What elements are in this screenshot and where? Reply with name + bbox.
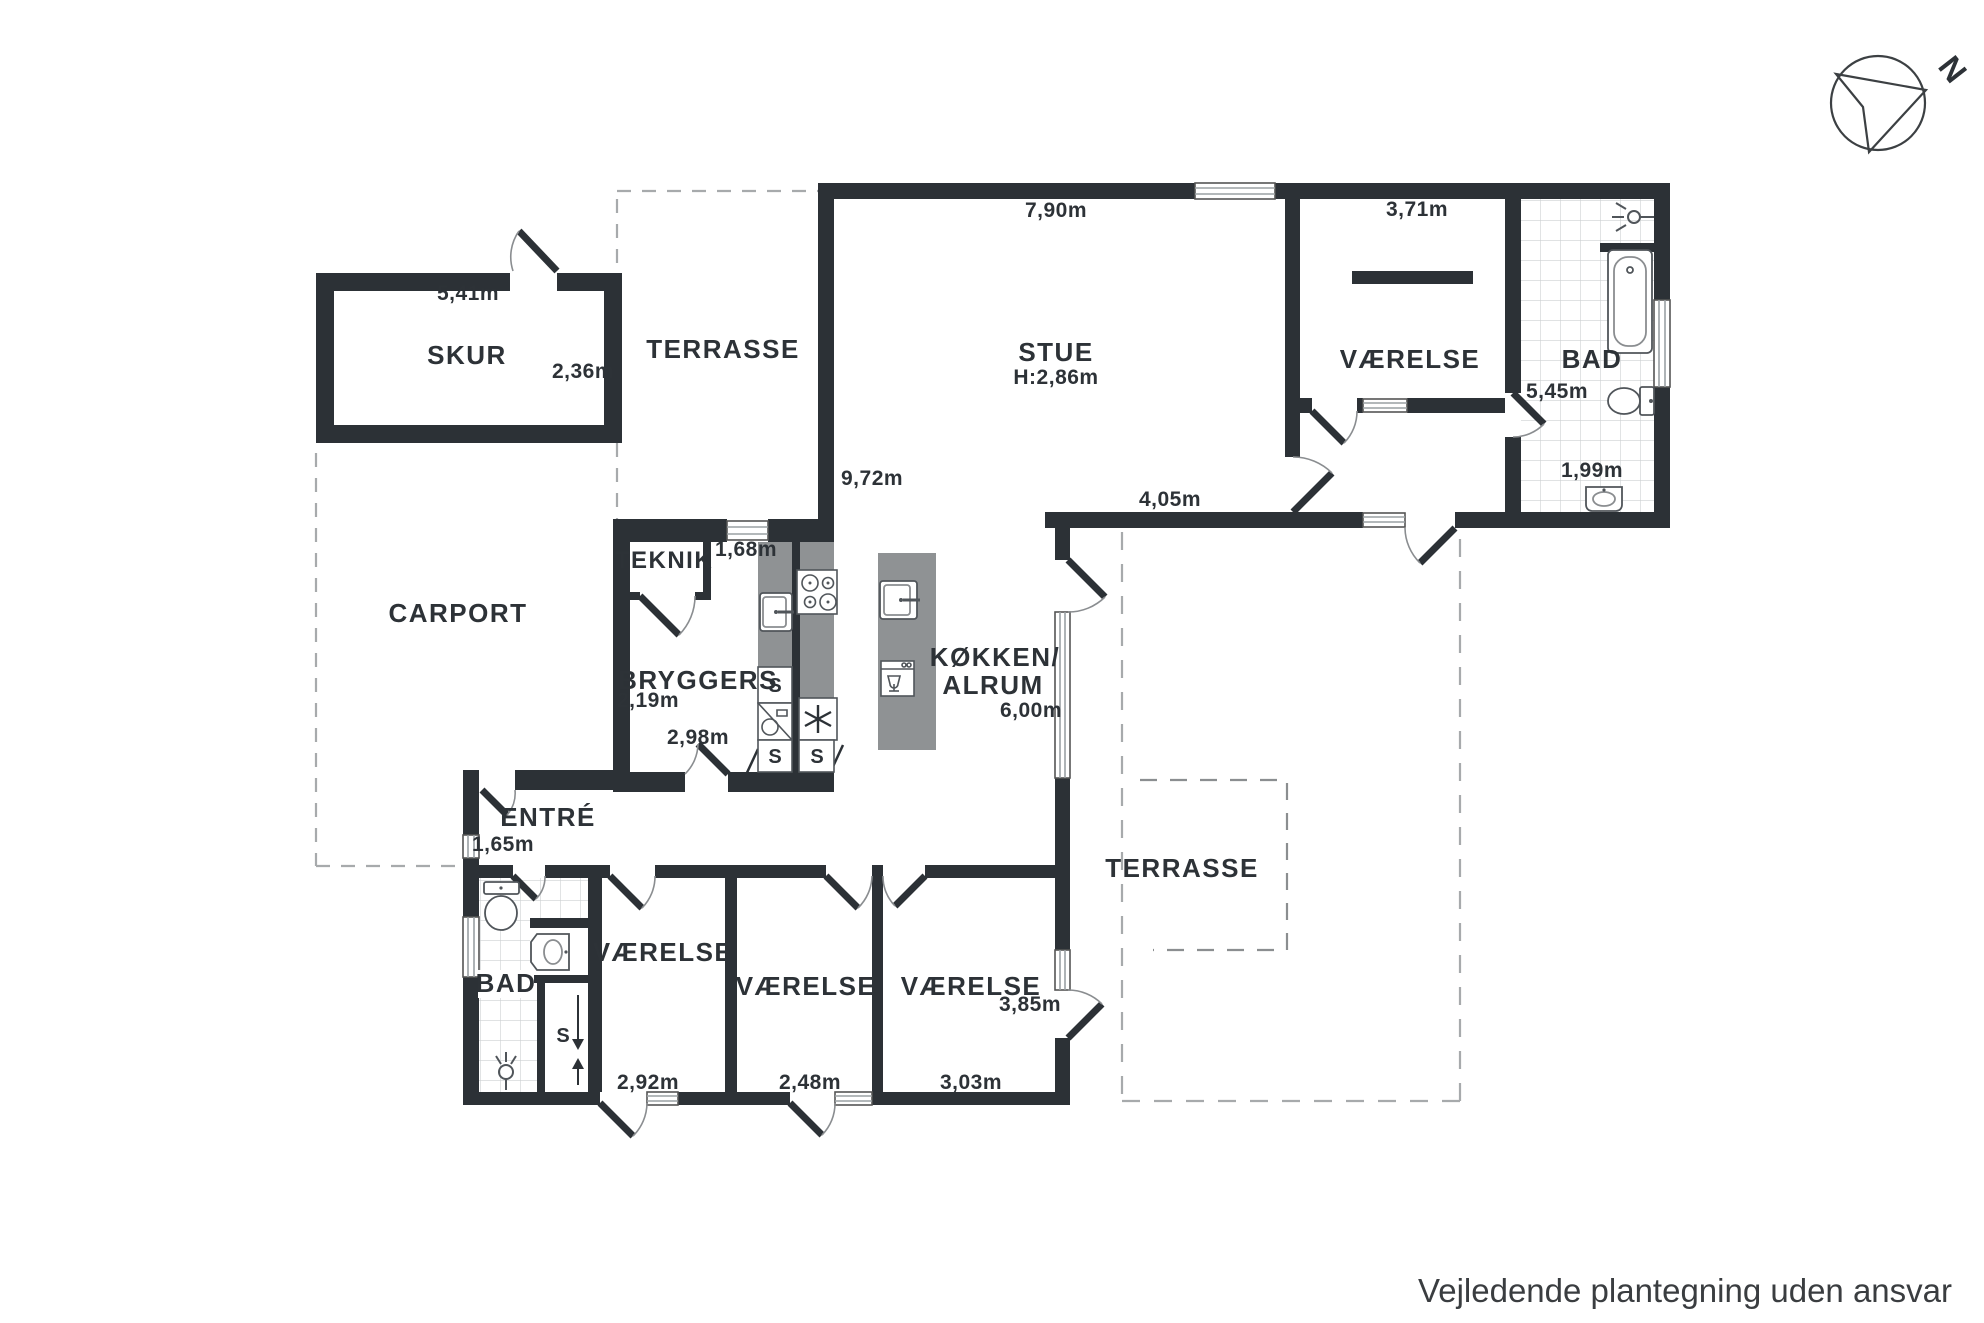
room-label-terrasse-top: TERRASSE — [646, 334, 800, 364]
dim-bad-ne-width: 1,99m — [1561, 459, 1623, 482]
sink-sw-icon — [531, 934, 569, 970]
dim-bryggers-depth: 2,98m — [667, 726, 729, 749]
cabinet-label-s3: S — [810, 746, 823, 768]
dim-bryggers-width: 2,19m — [617, 689, 679, 712]
window-vaerelse-ne — [1363, 399, 1407, 412]
dim-koekken-width: 6,00m — [1000, 699, 1062, 722]
room-label-stue: STUE — [1018, 337, 1093, 367]
cabinet-label-s1: S — [768, 675, 781, 697]
dim-entre-width: 1,65m — [472, 833, 534, 856]
room-label-teknik: TEKNIK — [615, 547, 713, 574]
cabinet-label-s2: S — [768, 746, 781, 768]
dishwasher-icon — [881, 661, 914, 696]
window-vaerelse3-east — [1055, 950, 1070, 990]
island-sink-icon — [880, 581, 920, 619]
bryggers-sink-icon — [760, 593, 794, 631]
room-label-carport: CARPORT — [388, 598, 527, 628]
room-label-vaerelse1: VÆRELSE — [593, 937, 734, 967]
room-label-koekken-line2: ALRUM — [942, 670, 1043, 700]
sink-ne-icon — [1586, 487, 1622, 511]
window-corridor-south — [1363, 513, 1405, 527]
dim-vaerelse-ne-width: 3,71m — [1386, 198, 1448, 221]
kitchen-wall-counter — [800, 542, 834, 700]
bathtub-icon — [1608, 250, 1652, 353]
dim-bad-ne-depth: 5,45m — [1526, 380, 1588, 403]
dim-stue-ceiling: H:2,86m — [1013, 366, 1098, 389]
floorplan-page: SKUR 5,41m 2,36m TERRASSE STUE H:2,86m 7… — [0, 0, 1984, 1323]
window-stue-top — [1195, 183, 1275, 199]
dim-stue-depth: 9,72m — [841, 467, 903, 490]
room-label-vaerelse-ne: VÆRELSE — [1340, 344, 1481, 374]
room-label-koekken-line1: KØKKEN/ — [930, 642, 1060, 672]
footer-disclaimer: Vejledende plantegning uden ansvar — [1418, 1272, 1952, 1309]
room-label-bad-ne: BAD — [1562, 344, 1623, 374]
floorplan-drawing: SKUR 5,41m 2,36m TERRASSE STUE H:2,86m 7… — [0, 0, 1984, 1323]
room-label-vaerelse2: VÆRELSE — [736, 971, 877, 1001]
dim-teknik-width: 1,68m — [715, 538, 777, 561]
cabinet-label-s4: S — [556, 1025, 569, 1047]
window-koekken-east — [1055, 612, 1070, 778]
room-label-skur: SKUR — [427, 340, 507, 370]
room-label-entre: ENTRÉ — [500, 802, 596, 832]
window-bad-ne — [1654, 300, 1670, 387]
wardrobe-icon — [1352, 271, 1473, 284]
dim-vaerelse1-width: 2,92m — [617, 1071, 679, 1094]
toilet-ne-icon — [1608, 387, 1654, 415]
toilet-sw-icon — [484, 882, 519, 930]
dim-stue-width: 7,90m — [1025, 199, 1087, 222]
dim-vaerelse3-depth: 3,85m — [999, 993, 1061, 1016]
freezer-icon — [799, 698, 837, 740]
dim-vaerelse3-width: 3,03m — [940, 1071, 1002, 1094]
room-label-bad-sw: BAD — [476, 968, 537, 998]
dim-stue-south-wall: 4,05m — [1139, 488, 1201, 511]
dim-vaerelse2-width: 2,48m — [779, 1071, 841, 1094]
room-label-terrasse-east: TERRASSE — [1105, 853, 1259, 883]
dim-skur-width: 5,41m — [437, 282, 499, 305]
stove-icon — [797, 570, 837, 614]
dim-skur-depth: 2,36m — [552, 360, 614, 383]
